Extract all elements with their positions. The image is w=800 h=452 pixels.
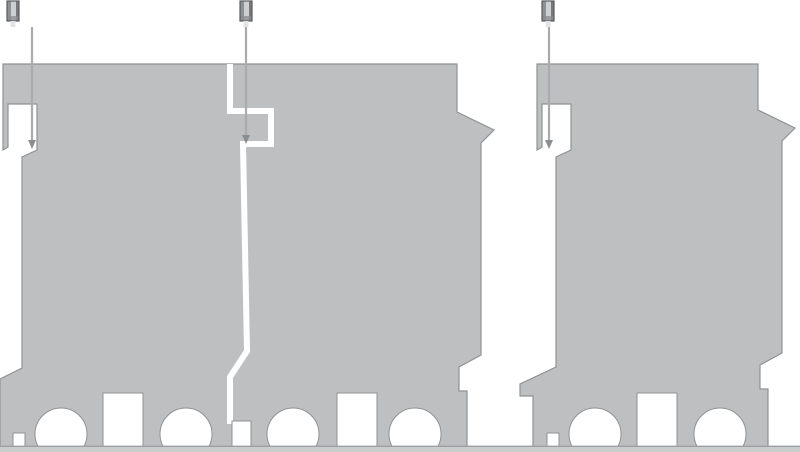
seam-bottom-slot (232, 421, 251, 447)
fixing-screw-1 (7, 16, 19, 21)
mounting-slot (103, 393, 143, 447)
mounting-slot (547, 433, 559, 447)
fixing-screw-1-stub (11, 21, 16, 27)
fixing-screw-3 (542, 16, 554, 21)
fixing-screw-2 (240, 16, 252, 21)
single-module-body (520, 64, 795, 447)
mounting-rail-baseline (0, 447, 800, 452)
fixing-screw-2-stub (244, 21, 249, 27)
diagram-canvas (0, 0, 800, 452)
mounting-slot (637, 393, 677, 447)
leader-arrowhead-icon (28, 140, 36, 149)
fixing-screw-3-stub (546, 21, 551, 27)
mounting-slot (13, 433, 25, 447)
mounting-rail-edge (0, 446, 800, 447)
mounting-slot (337, 393, 377, 447)
leader-arrowhead-icon (545, 140, 553, 149)
diagram-stage (0, 0, 800, 452)
